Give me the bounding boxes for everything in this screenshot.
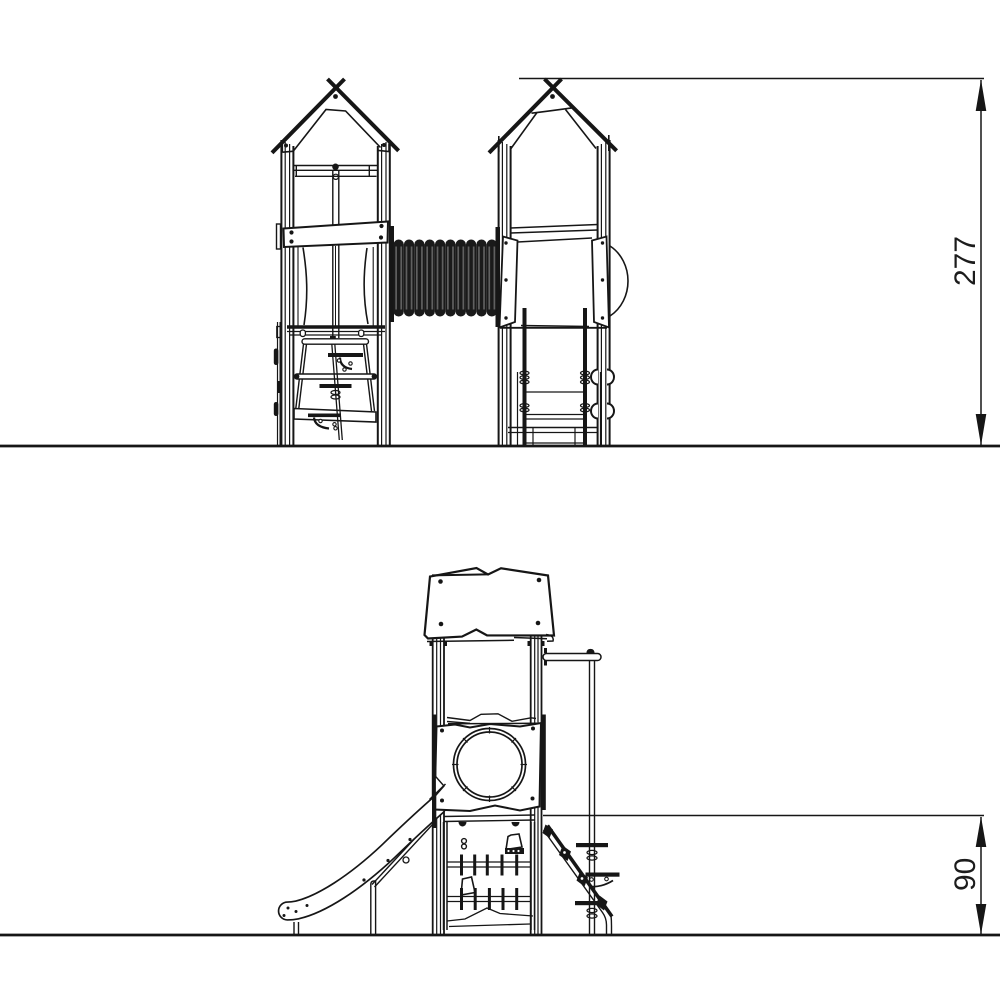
svg-text:277: 277 [949, 236, 982, 286]
svg-text:90: 90 [949, 858, 982, 891]
